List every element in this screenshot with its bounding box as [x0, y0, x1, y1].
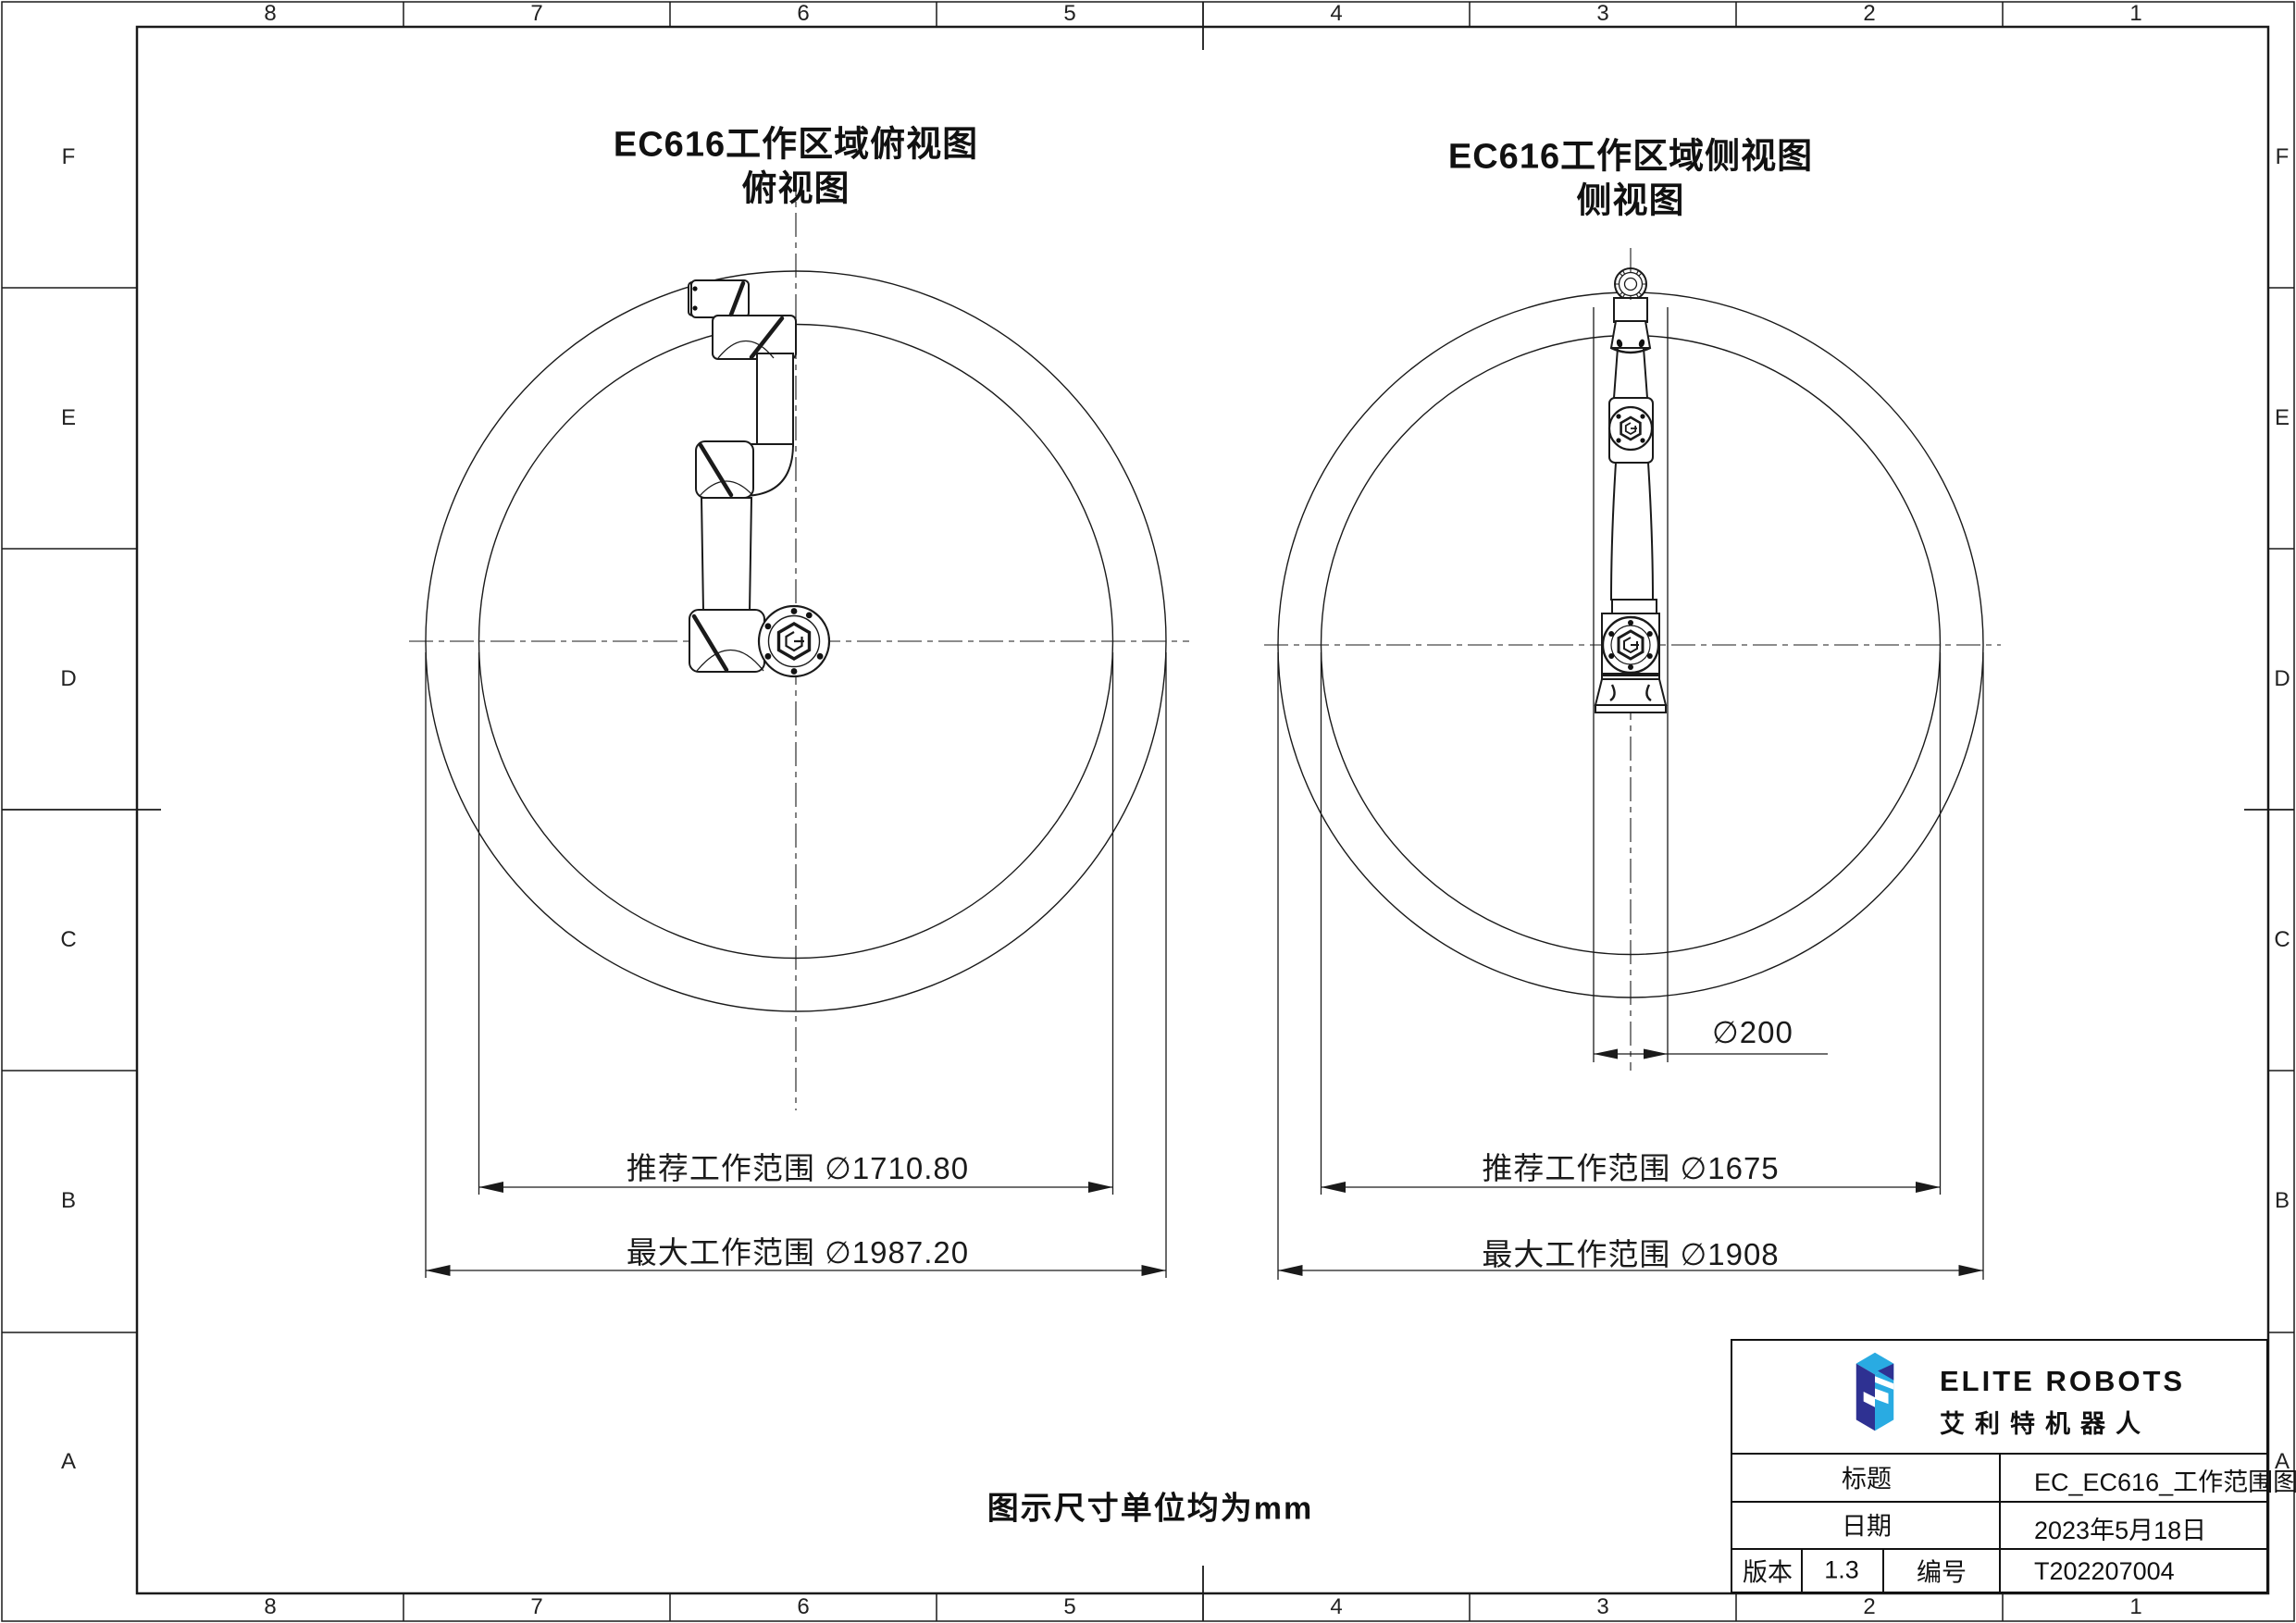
- grid-row-label: C: [2274, 927, 2290, 953]
- title-block-divider: [1882, 1548, 1884, 1592]
- grid-row-label: B: [2275, 1188, 2290, 1214]
- grid-col-label: 4: [1330, 1594, 1342, 1620]
- side-view-dim-column: ∅200: [1712, 1014, 1793, 1050]
- elite-robots-logo-icon: [1855, 1351, 1895, 1432]
- grid-row-label: A: [61, 1449, 76, 1475]
- version-label: 版本: [1743, 1553, 1793, 1589]
- grid-row-label: B: [61, 1188, 76, 1214]
- drawing-sheet: 8 7 6 5 4 3 2 1 8 7 6 5 4 3 2 1 F E D C …: [0, 0, 2296, 1623]
- side-view-subtitle: 侧视图: [1576, 172, 1684, 223]
- grid-col-label: 7: [530, 1, 542, 27]
- grid-col-label: 2: [1863, 1594, 1875, 1620]
- grid-col-label: 4: [1330, 1, 1342, 27]
- title-block-divider: [1801, 1548, 1803, 1592]
- grid-col-label: 8: [264, 1, 276, 27]
- number-label: 编号: [1917, 1553, 1967, 1589]
- grid-col-label: 2: [1863, 1, 1875, 27]
- side-view-dim-recommended: 推荐工作范围 ∅1675: [1482, 1144, 1779, 1188]
- side-view-dim-max: 最大工作范围 ∅1908: [1482, 1230, 1779, 1274]
- grid-col-label: 1: [2129, 1, 2141, 27]
- number-value: T202207004: [2034, 1557, 2175, 1586]
- top-view-title: EC616工作区域俯视图: [614, 116, 978, 167]
- top-view-dim-max: 最大工作范围 ∅1987.20: [627, 1228, 969, 1272]
- grid-col-label: 3: [1596, 1, 1608, 27]
- side-view-linework: [1264, 248, 2001, 1280]
- grid-row-label: F: [62, 144, 76, 170]
- grid-col-label: 5: [1063, 1, 1075, 27]
- grid-row-label: D: [60, 666, 76, 692]
- title-block-divider: [1999, 1453, 2001, 1592]
- unit-note: 图示尺寸单位均为mm: [987, 1483, 1313, 1529]
- grid-col-label: 5: [1063, 1594, 1075, 1620]
- version-value: 1.3: [1824, 1556, 1859, 1585]
- grid-col-label: 1: [2129, 1594, 2141, 1620]
- grid-row-label: C: [60, 927, 76, 953]
- grid-col-label: 6: [797, 1, 809, 27]
- grid-row-label: E: [2275, 405, 2290, 431]
- title-value: EC_EC616_工作范围图: [2034, 1462, 2296, 1498]
- brand-name-en: ELITE ROBOTS: [1940, 1365, 2185, 1398]
- grid-row-label: D: [2274, 666, 2290, 692]
- top-view-dim-recommended: 推荐工作范围 ∅1710.80: [627, 1144, 969, 1188]
- grid-col-label: 3: [1596, 1594, 1608, 1620]
- top-view-subtitle: 俯视图: [741, 160, 850, 211]
- grid-row-label: E: [61, 405, 76, 431]
- grid-col-label: 6: [797, 1594, 809, 1620]
- date-value: 2023年5月18日: [2034, 1510, 2206, 1546]
- top-view-linework: [409, 172, 1189, 1278]
- brand-name-cn: 艾利特机器人: [1940, 1404, 2151, 1440]
- grid-col-label: 8: [264, 1594, 276, 1620]
- grid-col-label: 7: [530, 1594, 542, 1620]
- title-label: 标题: [1842, 1459, 1892, 1495]
- side-view-title: EC616工作区域侧视图: [1448, 128, 1813, 179]
- date-label: 日期: [1842, 1506, 1892, 1542]
- title-block: ELITE ROBOTS 艾利特机器人 标题 EC_EC616_工作范围图 日期…: [1731, 1339, 2268, 1593]
- grid-row-label: F: [2276, 144, 2290, 170]
